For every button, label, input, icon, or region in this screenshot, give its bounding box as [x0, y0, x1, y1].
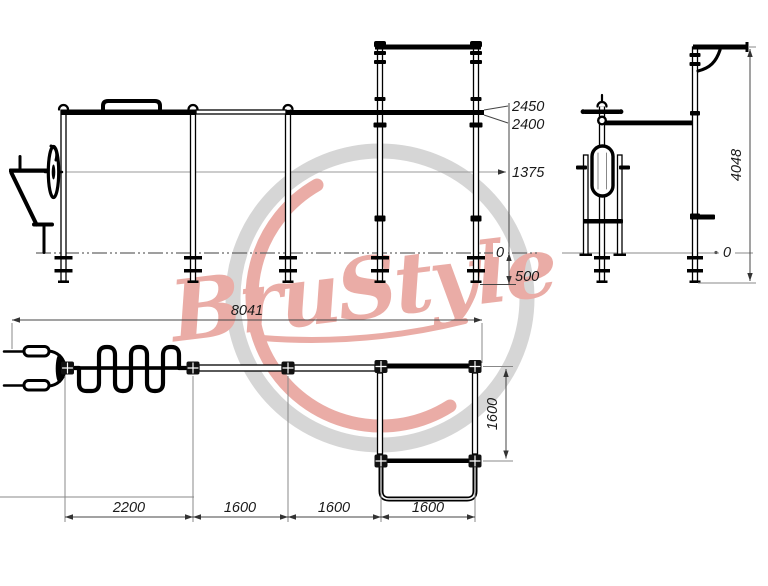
square-bottom-bar	[381, 459, 475, 464]
capsule-bag	[592, 146, 613, 196]
dim-bay-4: 1600	[412, 500, 444, 516]
side-crossbar	[604, 121, 693, 126]
plan-beam-1	[199, 365, 282, 371]
dim-bay-1: 2200	[112, 500, 145, 516]
dim-square-depth: 1600	[485, 398, 501, 430]
dim-mid-level: 1375	[512, 165, 545, 181]
dim-front-ground: 0	[496, 245, 504, 261]
dim-foundation-depth: 500	[515, 269, 539, 285]
square-left-side	[378, 373, 383, 454]
dim-overall-length: 8041	[231, 303, 263, 319]
square-right-side	[473, 373, 478, 454]
dim-bay-2: 1600	[224, 500, 256, 516]
dim-total-height: 4048	[729, 149, 745, 181]
pullup-bar-left-span	[61, 110, 196, 116]
dim-bar-bottom: 2400	[511, 117, 544, 133]
pullup-bar-right-span	[286, 110, 484, 115]
plan-beam-2	[294, 365, 375, 371]
dim-bay-3: 1600	[318, 500, 350, 516]
high-bar	[375, 45, 481, 50]
grip-handle	[103, 101, 160, 110]
square-top-bar	[381, 364, 475, 369]
hand-wheel	[45, 146, 62, 198]
dim-side-ground: 0	[723, 245, 731, 261]
arm-gusset	[698, 50, 720, 71]
bench-outline	[381, 464, 475, 499]
plan-handle-top	[24, 347, 49, 357]
dim-bar-top: 2450	[511, 99, 544, 115]
technical-drawing-canvas: BruStyle	[0, 0, 768, 586]
plan-handle-bottom	[24, 381, 49, 391]
connecting-beam	[196, 110, 286, 114]
